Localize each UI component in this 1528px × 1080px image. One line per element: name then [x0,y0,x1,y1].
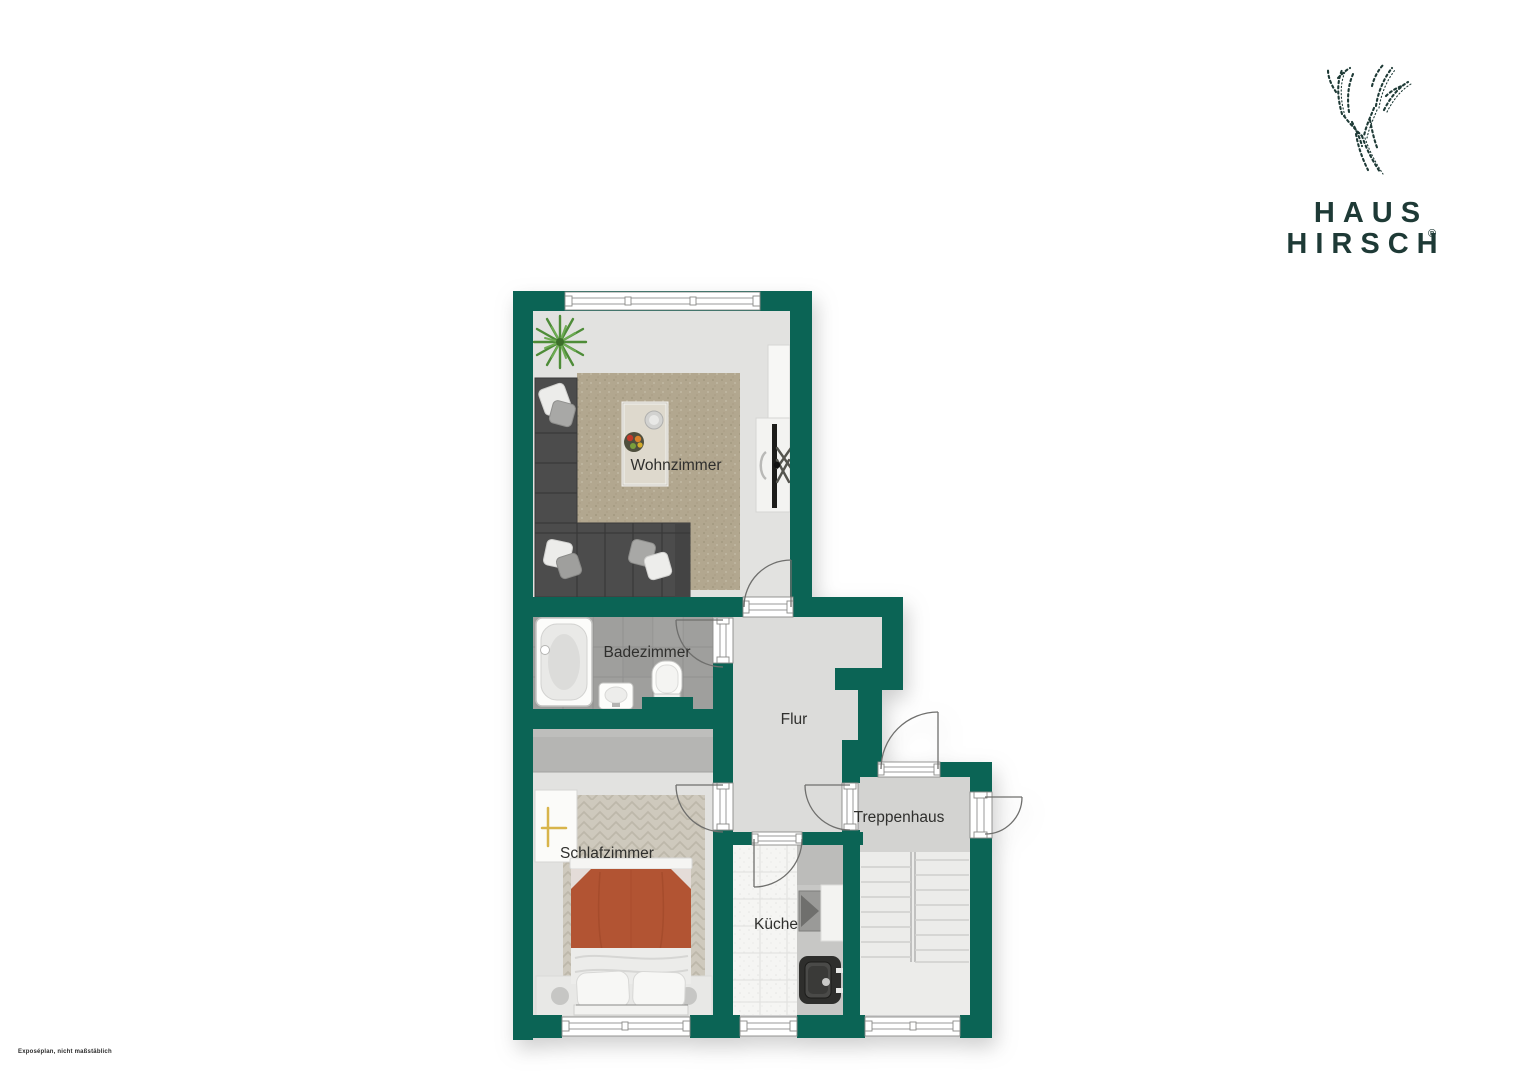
floor-plan: Wohnzimmer Badezimmer Flur Schlafzimmer … [513,291,1022,1040]
tv-console [756,418,791,512]
toilet-icon [652,661,682,702]
logo-line1: HAUS [1314,197,1428,229]
door-treppenhaus [878,712,940,777]
kitchen-sink-icon [799,956,844,1004]
floor-plan-canvas: Wohnzimmer Badezimmer Flur Schlafzimmer … [0,0,1528,1080]
kitchen-counter [797,845,844,1015]
wardrobe [533,729,713,772]
disclaimer-note: Exposéplan, nicht maßstäblich [18,1049,112,1055]
window-treppenhaus [865,1017,960,1036]
sideboard-icon [768,345,790,418]
logo-registered-mark: ® [1428,228,1436,240]
wohnzimmer-label: Wohnzimmer [630,457,721,474]
kueche-label: Küche [754,916,798,933]
bathtub-icon [536,618,592,706]
deer-antlers-icon [1328,64,1411,174]
schlafzimmer-label: Schlafzimmer [560,845,654,862]
logo-line2: HIRSCH [1286,228,1445,260]
treppenhaus-label: Treppenhaus [854,809,945,826]
washbasin-icon [599,683,633,709]
badezimmer-label: Badezimmer [604,644,691,661]
flur-label: Flur [781,711,808,728]
window-kueche [740,1017,797,1036]
fruit-bowl-icon [624,432,644,452]
window-schlafzimmer [562,1017,690,1036]
window-wohnzimmer [565,292,760,310]
door-neighbor [970,792,1022,838]
stove-icon [799,891,821,931]
haus-hirsch-logo: HAUS HIRSCH ® [1286,64,1445,260]
